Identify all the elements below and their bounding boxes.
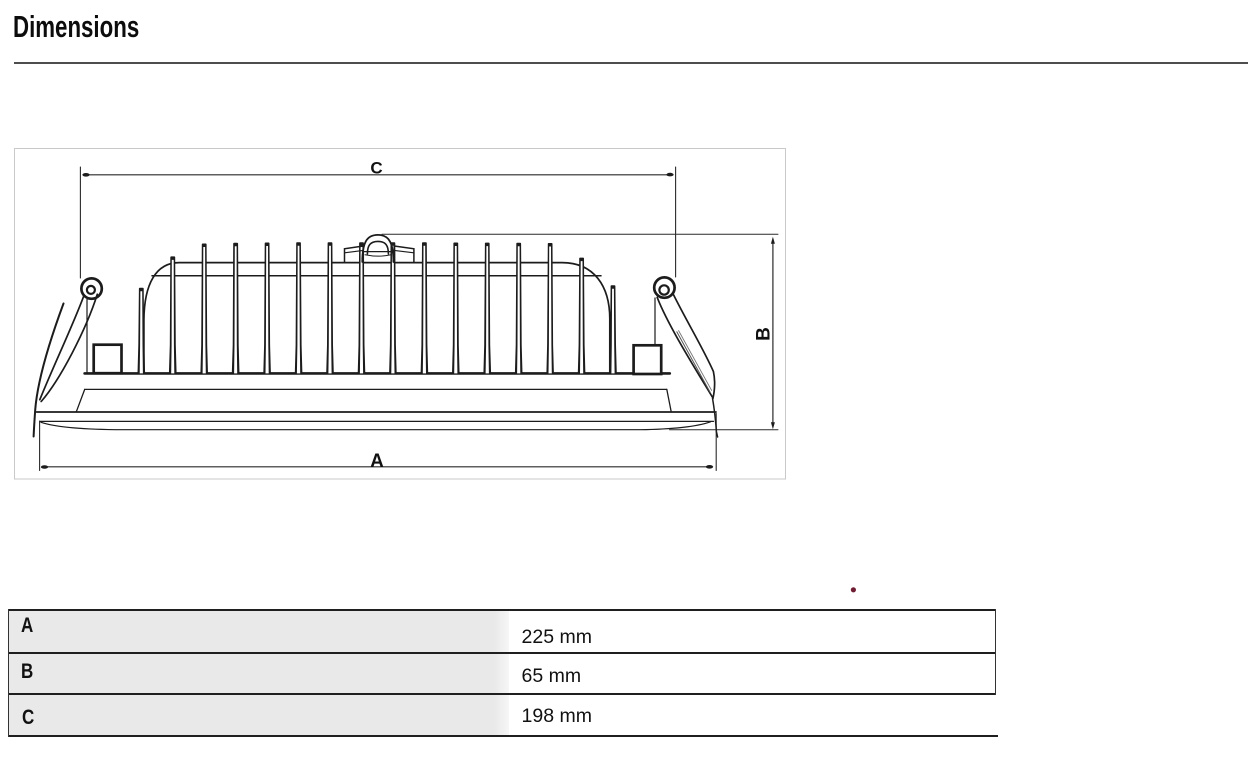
svg-text:B: B <box>754 327 775 341</box>
svg-text:C: C <box>370 159 382 178</box>
svg-text:A: A <box>370 451 384 472</box>
